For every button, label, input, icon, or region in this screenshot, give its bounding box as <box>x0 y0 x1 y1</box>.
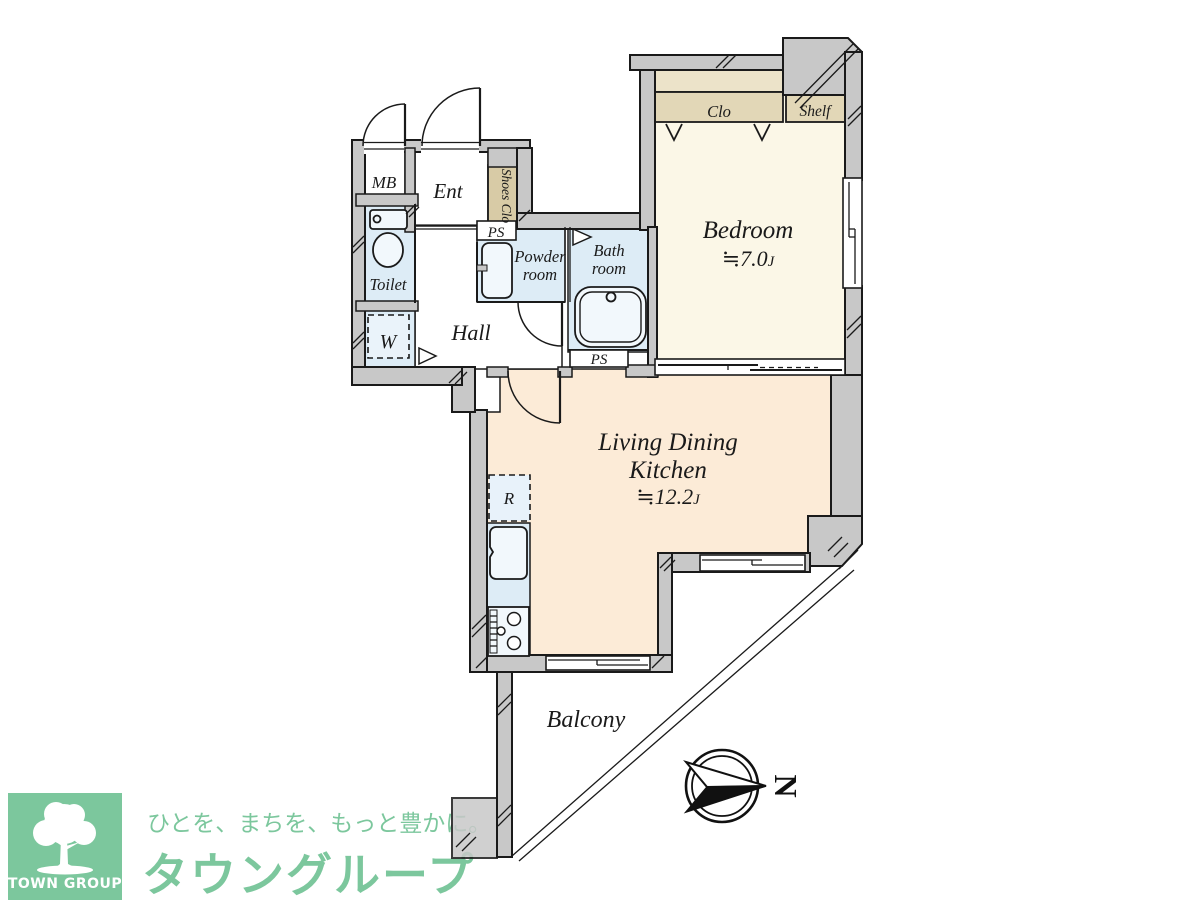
label-clo: Clo <box>707 102 731 121</box>
label-bath-2: room <box>592 259 626 278</box>
bedroom-window <box>843 178 862 288</box>
floorplan-page: TOWN GROUP ひとを、まちを、もっと豊かに。 タウングループ <box>0 0 1200 900</box>
logo-tagline: ひとを、まちを、もっと豊かに。 <box>147 811 491 837</box>
label-mb: MB <box>371 173 397 192</box>
logo-square-label: TOWN GROUP <box>8 876 122 892</box>
label-ldk-1: Living Dining <box>597 429 738 456</box>
label-ps-bottom: PS <box>590 352 608 368</box>
label-powder-2: room <box>523 265 557 284</box>
label-hall: Hall <box>450 320 490 345</box>
vanity <box>477 243 512 298</box>
window-ldk-east <box>700 555 805 571</box>
label-toilet: Toilet <box>370 275 407 294</box>
label-fridge: R <box>503 489 515 508</box>
label-bath-1: Bath <box>593 241 624 260</box>
sliding-door-bedroom <box>655 359 845 375</box>
sink <box>490 527 527 579</box>
north-label: N <box>768 774 804 797</box>
logo-town-group: TOWN GROUP ひとを、まちを、もっと豊かに。 タウングループ <box>8 793 491 900</box>
label-shelf: Shelf <box>800 103 834 120</box>
label-bedroom: Bedroom <box>703 217 794 244</box>
label-shoes-clo: Shoes Clo <box>499 169 514 224</box>
label-ldk-area: ≒12.2J <box>636 484 701 509</box>
label-powder-1: Powder <box>513 247 566 266</box>
compass-icon: N <box>686 750 804 822</box>
entrance-door-arc <box>422 88 480 146</box>
label-ent: Ent <box>432 179 463 203</box>
label-washer: W <box>380 331 399 353</box>
label-ldk-2: Kitchen <box>628 457 707 484</box>
label-ps-top: PS <box>487 225 505 241</box>
logo-brand: タウングループ <box>142 848 475 900</box>
window-ldk-south <box>546 656 650 670</box>
bathtub <box>575 287 646 347</box>
closet-clo-top <box>655 70 783 92</box>
label-bedroom-area: ≒7.0J <box>722 246 776 271</box>
label-balcony: Balcony <box>547 707 626 733</box>
floorplan-drawing: TOWN GROUP ひとを、まちを、もっと豊かに。 タウングループ <box>0 0 1200 900</box>
stove <box>488 607 529 656</box>
